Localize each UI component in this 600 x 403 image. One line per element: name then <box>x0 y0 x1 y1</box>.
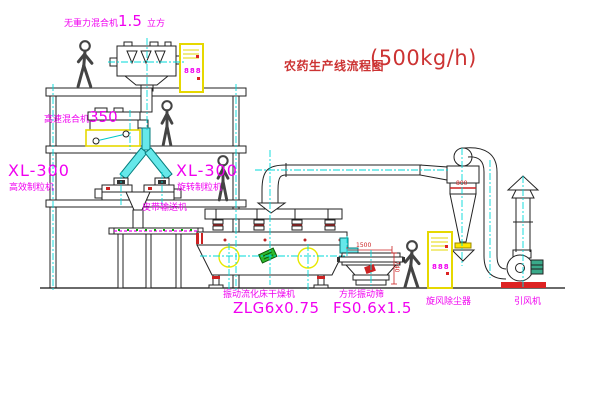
label-granulator-mid: 旋转制粒机 <box>177 184 222 193</box>
gravity-mixer-unit: 立方 <box>147 19 165 29</box>
label-sieve-model: FS0.6x1.5 <box>333 301 412 316</box>
cabinet-ground-display: 888 <box>432 264 450 271</box>
label-gravity-mixer: 无重力混合机1.5 立方 <box>64 13 165 29</box>
label-granulator-left: 高效制粒机 <box>9 184 54 193</box>
label-high-speed-mixer: 高速混合机350 <box>44 109 118 125</box>
dim-sieve-height: 740 <box>393 261 399 272</box>
hs-mixer-name: 高速混合机 <box>44 115 89 125</box>
label-xl300-mid: XL-300 <box>176 163 238 179</box>
belt-conveyor <box>109 228 209 288</box>
induced-draft-fan <box>501 176 546 288</box>
spring-mounts <box>213 220 335 230</box>
hs-mixer-size: 350 <box>89 108 118 126</box>
gravity-mixer-size: 1.5 <box>118 12 142 30</box>
gravity-mixer <box>110 42 185 112</box>
label-belt-conveyor: 皮带输送机 <box>142 204 187 213</box>
diagram-title: 农药生产线流程图 <box>284 57 384 74</box>
label-xl300-left: XL-300 <box>8 163 70 179</box>
worker-ground <box>405 241 419 287</box>
label-fan: 引风机 <box>514 298 541 307</box>
dim-cyclone: 800 <box>456 181 467 187</box>
control-cabinet-ground <box>428 232 452 288</box>
worker-floor2 <box>162 101 172 145</box>
label-dryer-model: ZLG6x0.75 <box>233 301 320 316</box>
flow-diagram: 无重力混合机1.5 立方 高速混合机350 XL-300 高效制粒机 XL-30… <box>0 0 600 403</box>
worker-top <box>78 41 92 86</box>
cabinet-top-display: 888 <box>184 68 202 75</box>
fluid-bed-dryer <box>196 209 347 288</box>
label-cyclone: 旋风除尘器 <box>426 298 471 307</box>
dim-sieve-length: 1500 <box>356 243 371 249</box>
gravity-mixer-name: 无重力混合机 <box>64 19 118 29</box>
exhaust-duct <box>258 163 447 213</box>
diagram-title-capacity: (500kg/h) <box>370 46 477 70</box>
